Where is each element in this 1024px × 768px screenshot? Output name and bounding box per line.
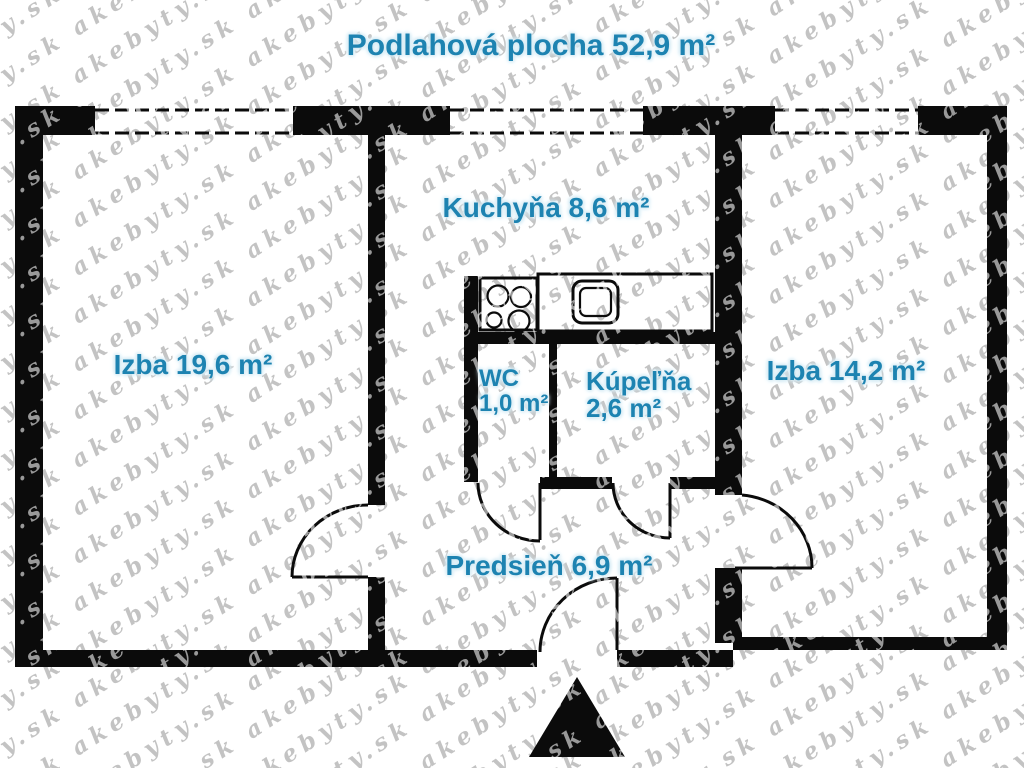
window-3 bbox=[775, 110, 918, 133]
door-left-room bbox=[292, 505, 368, 577]
wall-wc-bath-divider bbox=[549, 344, 557, 477]
window-1 bbox=[95, 110, 293, 133]
floorplan-drawing bbox=[0, 0, 1024, 768]
wall-kitchen-bath bbox=[464, 332, 715, 344]
wall-left bbox=[15, 106, 43, 667]
sink-icon bbox=[538, 274, 712, 331]
door-entrance bbox=[540, 578, 617, 652]
wall-top-segment-2 bbox=[293, 106, 450, 135]
wall-rightroom-upper bbox=[715, 135, 742, 495]
door-wc bbox=[478, 483, 540, 541]
wall-bath-bottom-1 bbox=[540, 477, 612, 489]
stove-icon bbox=[480, 278, 537, 332]
wall-bottom-right-room bbox=[733, 637, 1007, 650]
wall-bottom-segment-1 bbox=[15, 650, 537, 667]
floorplan-stage: akebyty.sk akebyty.sk akebyty.sk akebyty… bbox=[0, 0, 1024, 768]
wall-leftroom-upper bbox=[368, 135, 385, 505]
door-bathroom bbox=[613, 483, 670, 538]
wall-rightroom-lower bbox=[715, 568, 742, 643]
wall-leftroom-lower bbox=[368, 577, 385, 650]
entrance-arrow-icon bbox=[529, 677, 625, 757]
wall-top-segment-3 bbox=[643, 106, 775, 135]
window-2 bbox=[450, 110, 643, 133]
door-right-room bbox=[735, 495, 812, 568]
wall-bottom-segment-2 bbox=[617, 650, 733, 667]
wall-right bbox=[987, 106, 1007, 650]
wall-wc-left bbox=[464, 276, 478, 482]
wall-bath-bottom-2 bbox=[670, 477, 715, 489]
